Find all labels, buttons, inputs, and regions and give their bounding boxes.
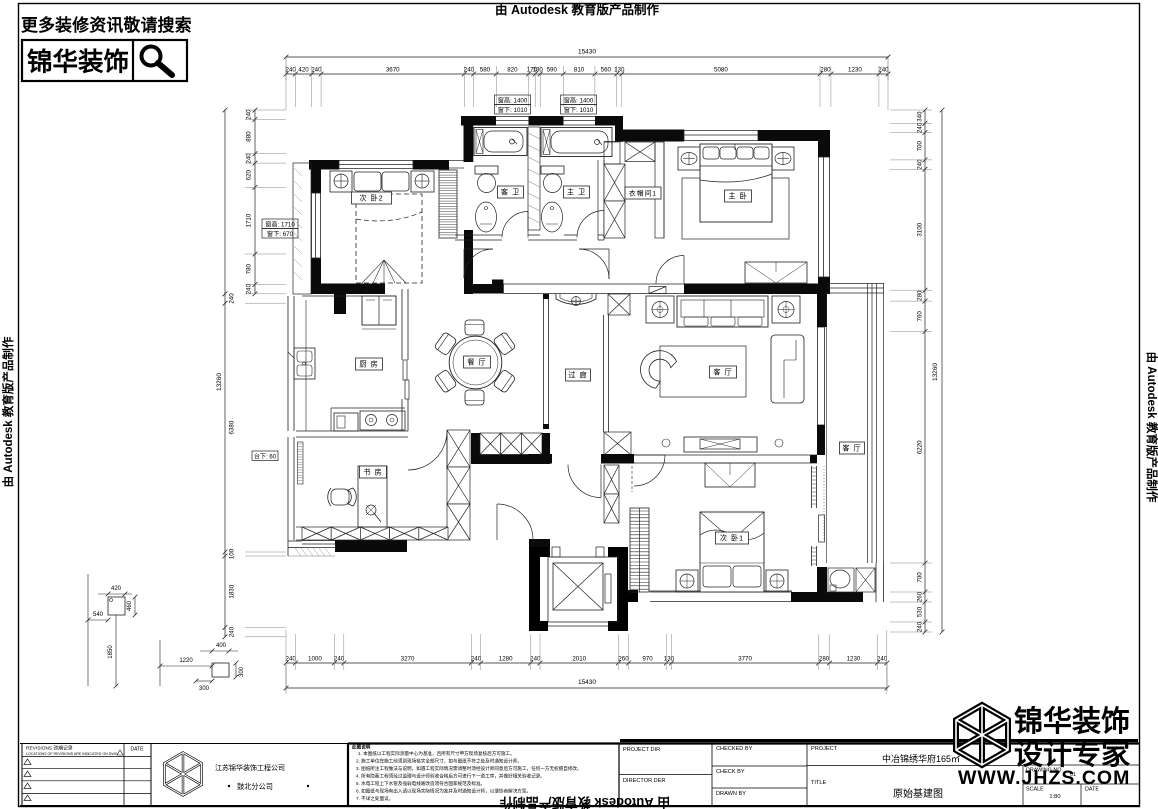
svg-text:15430: 15430	[578, 49, 596, 56]
svg-text:1000: 1000	[308, 656, 322, 663]
svg-text:130: 130	[614, 67, 625, 74]
svg-text:15430: 15430	[578, 679, 596, 686]
svg-text:6380: 6380	[229, 420, 236, 434]
svg-text:由 Autodesk 教育版产品制作: 由 Autodesk 教育版产品制作	[1145, 352, 1158, 503]
svg-text:2. 施工单位在施工前须到现场核实全部尺寸，如与图纸不符之: 2. 施工单位在施工前须到现场核实全部尺寸，如与图纸不符之处及时通知设计师。	[356, 758, 522, 765]
svg-text:340: 340	[917, 111, 924, 122]
svg-text:4. 所有隐蔽工程须经过监理与设计师验收合格后方可进行下一: 4. 所有隐蔽工程须经过监理与设计师验收合格后方可进行下一道工序，并做好相关验收…	[356, 773, 545, 780]
svg-text:280: 280	[819, 656, 830, 663]
svg-text:窗下: 670: 窗下: 670	[267, 230, 294, 238]
svg-text:580: 580	[480, 67, 491, 74]
svg-text:560: 560	[601, 67, 612, 74]
svg-text:240: 240	[229, 626, 236, 637]
svg-text:1230: 1230	[847, 656, 861, 663]
svg-text:780: 780	[246, 263, 253, 274]
svg-text:CHECK BY: CHECK BY	[716, 769, 745, 775]
svg-text:次 卧2: 次 卧2	[359, 194, 383, 203]
svg-text:240: 240	[229, 293, 236, 304]
svg-text:100: 100	[229, 548, 236, 559]
svg-text:6. 如图纸与现场有出入请以现场实际情况为准并及时通知设计: 6. 如图纸与现场有出入请以现场实际情况为准并及时通知设计师，以便协商解决方案。	[356, 788, 531, 795]
svg-text:2010: 2010	[572, 656, 586, 663]
svg-text:240: 240	[877, 656, 888, 663]
svg-text:240: 240	[286, 67, 297, 74]
svg-text:窗下: 1010: 窗下: 1010	[498, 106, 528, 114]
svg-text:DIRECTOR DER: DIRECTOR DER	[623, 778, 665, 784]
svg-text:窗高: 1400: 窗高: 1400	[498, 96, 528, 104]
svg-text:300: 300	[199, 686, 210, 692]
svg-text:厨 房: 厨 房	[359, 360, 378, 369]
svg-text:540: 540	[93, 612, 104, 618]
svg-text:1280: 1280	[499, 656, 513, 663]
svg-text:PROJECT: PROJECT	[811, 746, 838, 752]
svg-text:700: 700	[917, 141, 924, 152]
svg-text:REVISIONS 改期记录: REVISIONS 改期记录	[26, 745, 73, 752]
svg-text:原始基建图: 原始基建图	[893, 787, 943, 800]
svg-text:240: 240	[286, 656, 297, 663]
svg-text:700: 700	[917, 572, 924, 583]
svg-text:鼓北分公司: 鼓北分公司	[237, 782, 273, 791]
svg-text:1220: 1220	[179, 658, 193, 664]
svg-text:280: 280	[820, 67, 831, 74]
svg-text:240: 240	[471, 656, 482, 663]
svg-text:锦华装饰: 锦华装饰	[1014, 705, 1130, 738]
svg-text:窗高: 1400: 窗高: 1400	[564, 96, 594, 104]
svg-text:中冶锦绣华府165㎡: 中冶锦绣华府165㎡	[882, 753, 960, 764]
svg-text:江苏锦华装饰工程公司: 江苏锦华装饰工程公司	[215, 763, 285, 772]
svg-text:7. 不详之处面议。: 7. 不详之处面议。	[356, 795, 393, 802]
svg-text:1830: 1830	[229, 584, 236, 598]
svg-text:260: 260	[618, 656, 629, 663]
svg-text:400: 400	[216, 643, 227, 649]
svg-text:书 房: 书 房	[363, 468, 382, 477]
svg-text:LOCATIONS OF REVISIONS ARE IND: LOCATIONS OF REVISIONS ARE INDICATED ON …	[26, 752, 119, 756]
svg-text:设计专家: 设计专家	[1014, 737, 1130, 771]
svg-text:260: 260	[917, 591, 924, 602]
svg-text:1230: 1230	[848, 67, 862, 74]
svg-text:820: 820	[507, 67, 518, 74]
svg-text:240: 240	[878, 67, 889, 74]
svg-text:460: 460	[127, 600, 133, 611]
svg-text:PROJECT DIR: PROJECT DIR	[623, 747, 660, 753]
svg-text:1710: 1710	[246, 213, 253, 227]
svg-text:窗高: 1710: 窗高: 1710	[265, 220, 295, 228]
svg-text:WWW.JHZS.COM: WWW.JHZS.COM	[958, 767, 1130, 789]
svg-text:590: 590	[547, 67, 558, 74]
svg-text:DRAWN BY: DRAWN BY	[716, 791, 746, 797]
svg-text:760: 760	[917, 311, 924, 322]
svg-text:由 Autodesk 教育版产品制作: 由 Autodesk 教育版产品制作	[495, 2, 659, 17]
svg-text:窗下: 1010: 窗下: 1010	[564, 106, 594, 114]
svg-text:客 厅: 客 厅	[842, 444, 861, 453]
svg-text:13260: 13260	[216, 373, 223, 391]
svg-text:由 Autodesk 教育版产品制作: 由 Autodesk 教育版产品制作	[1, 336, 15, 487]
svg-text:240: 240	[917, 122, 924, 133]
svg-text:240: 240	[334, 656, 345, 663]
svg-text:240: 240	[246, 153, 253, 164]
svg-text:CHECKED BY: CHECKED BY	[716, 746, 753, 752]
svg-text:锦华装饰: 锦华装饰	[27, 48, 129, 77]
svg-text:620: 620	[246, 169, 253, 180]
svg-text:6220: 6220	[917, 440, 924, 454]
svg-text:1850: 1850	[108, 645, 114, 659]
svg-text:DATE: DATE	[131, 747, 145, 753]
svg-text:主 卧: 主 卧	[728, 192, 747, 201]
svg-text:240: 240	[530, 656, 541, 663]
svg-text:TITLE: TITLE	[811, 780, 826, 786]
svg-text:130: 130	[533, 67, 544, 74]
svg-text:1:80: 1:80	[1049, 794, 1060, 800]
svg-text:更多装修资讯敬请搜索: 更多装修资讯敬请搜索	[21, 15, 192, 35]
svg-text:3100: 3100	[917, 222, 924, 236]
svg-text:衣帽间1: 衣帽间1	[629, 189, 657, 198]
svg-text:3. 图纸所注工程做法与说明，如遇工程实际情况需调整时须经: 3. 图纸所注工程做法与说明，如遇工程实际情况需调整时须经设计师同意后方可施工，…	[356, 765, 582, 772]
svg-text:此图说明: 此图说明	[352, 744, 371, 751]
svg-text:240: 240	[917, 621, 924, 632]
svg-text:客 卫: 客 卫	[501, 188, 520, 197]
svg-text:过 廊: 过 廊	[568, 371, 587, 380]
svg-text:240: 240	[311, 67, 322, 74]
svg-text:240: 240	[246, 283, 253, 294]
svg-text:客 厅: 客 厅	[713, 368, 732, 377]
svg-text:主 卫: 主 卫	[567, 188, 586, 197]
svg-text:130: 130	[664, 656, 675, 663]
svg-text:240: 240	[917, 159, 924, 170]
svg-text:3670: 3670	[386, 67, 400, 74]
svg-text:3270: 3270	[401, 656, 415, 663]
svg-text:240: 240	[246, 109, 253, 120]
svg-text:300: 300	[239, 666, 245, 677]
svg-text:1. 本图纸以工程实际测量中心为基准，且所有尺寸甲方现场复: 1. 本图纸以工程实际测量中心为基准，且所有尺寸甲方现场复核后方可施工。	[358, 750, 515, 757]
svg-text:530: 530	[917, 606, 924, 617]
svg-text:台下: 60: 台下: 60	[254, 453, 277, 461]
svg-text:3770: 3770	[738, 656, 752, 663]
svg-text:240: 240	[464, 67, 475, 74]
svg-text:5. 水电工程上下水管及强弱电线路改造须符合国家规范及标准: 5. 水电工程上下水管及强弱电线路改造须符合国家规范及标准。	[356, 780, 485, 787]
svg-text:970: 970	[642, 656, 653, 663]
svg-text:由 Autodesk 教育版产品制作: 由 Autodesk 教育版产品制作	[500, 795, 670, 809]
svg-text:5080: 5080	[714, 67, 728, 74]
svg-text:880: 880	[246, 131, 253, 142]
svg-text:810: 810	[574, 67, 585, 74]
svg-text:次 卧1: 次 卧1	[720, 534, 744, 543]
svg-text:420: 420	[298, 67, 309, 74]
svg-text:280: 280	[917, 290, 924, 301]
svg-text:420: 420	[111, 586, 122, 592]
svg-text:餐 厅: 餐 厅	[467, 358, 486, 367]
svg-text:13260: 13260	[932, 363, 939, 381]
